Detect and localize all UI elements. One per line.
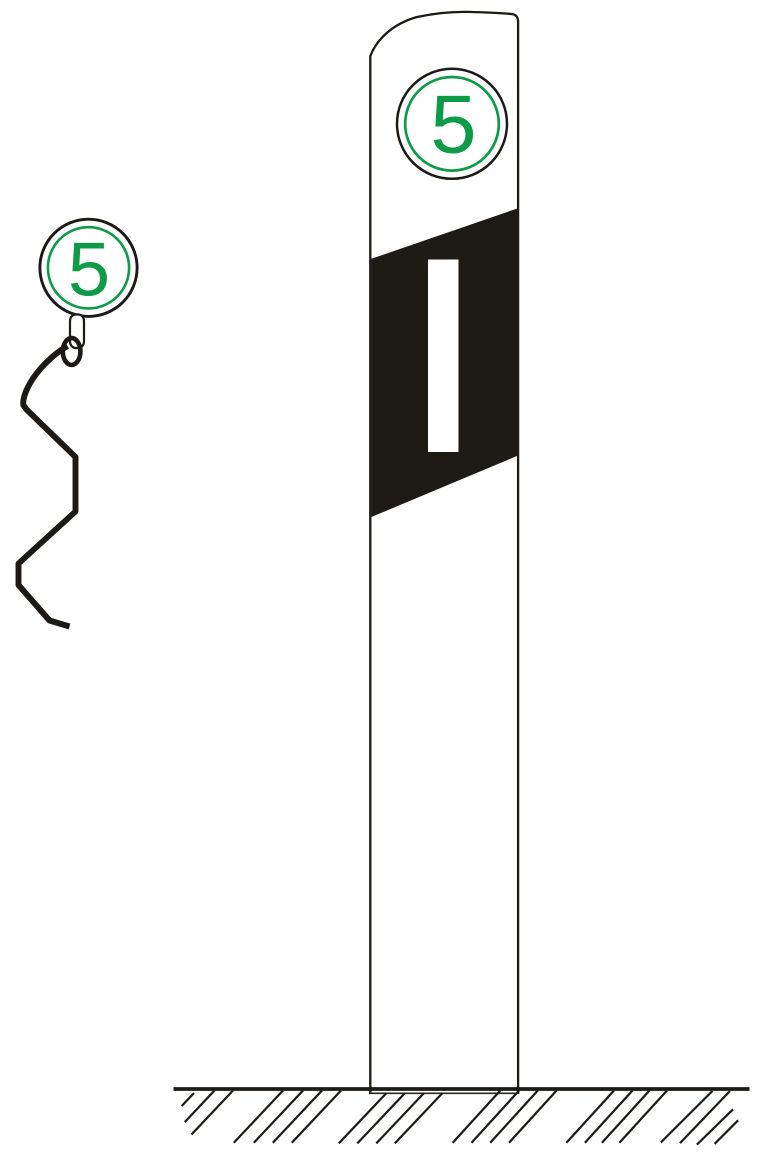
svg-text:5: 5 — [430, 77, 476, 170]
svg-text:5: 5 — [68, 228, 110, 313]
